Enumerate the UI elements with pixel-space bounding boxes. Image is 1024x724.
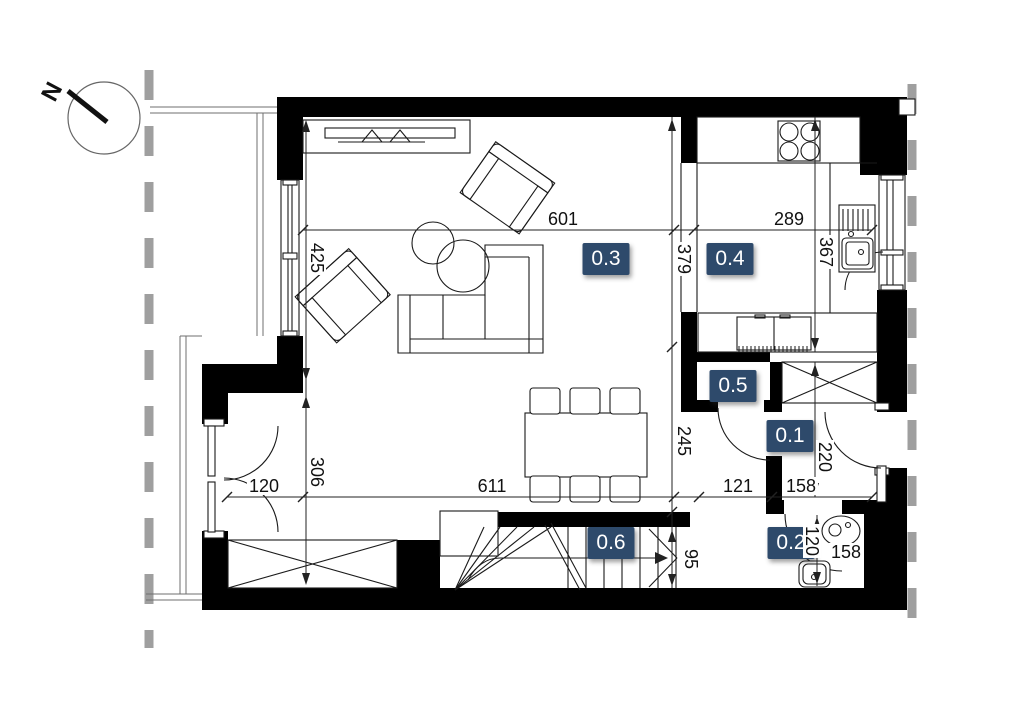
room-label-0-6: 0.6 bbox=[588, 527, 635, 559]
top-right-wall-notch bbox=[899, 99, 915, 115]
floor-plan-drawing bbox=[0, 0, 1024, 724]
dim-label-306: 306 bbox=[308, 455, 326, 489]
dim-label-95: 95 bbox=[682, 547, 700, 571]
dim-label-158-bath: 158 bbox=[829, 543, 863, 561]
dim-label-120-door: 120 bbox=[247, 477, 281, 495]
dim-label-289: 289 bbox=[772, 210, 806, 228]
dim-label-367: 367 bbox=[817, 235, 835, 269]
dim-label-158-hall: 158 bbox=[784, 477, 818, 495]
dim-label-611: 611 bbox=[476, 477, 509, 495]
left-window bbox=[281, 180, 299, 336]
room-label-0-5: 0.5 bbox=[710, 370, 757, 402]
kitchen-appliance-unit bbox=[737, 315, 811, 352]
kitchen-sink-icon bbox=[839, 205, 875, 272]
shaft-crossed-box bbox=[782, 362, 877, 403]
tv-sideboard bbox=[303, 120, 470, 153]
dim-label-601: 601 bbox=[546, 210, 580, 228]
room-label-0-1: 0.1 bbox=[767, 420, 814, 452]
storage-door bbox=[718, 408, 770, 460]
dim-label-425: 425 bbox=[308, 241, 326, 275]
corner-sofa bbox=[398, 245, 543, 353]
armchair bbox=[460, 142, 555, 234]
void-crossed-box bbox=[228, 540, 397, 588]
dim-label-120-bath: 120 bbox=[803, 524, 821, 558]
room-label-0-3: 0.3 bbox=[583, 243, 630, 275]
dim-label-379: 379 bbox=[675, 242, 693, 276]
dining-table bbox=[525, 388, 647, 502]
floor-plan: N 0.3 0.4 0.5 0.1 0.6 0.2 601 289 425 37… bbox=[0, 0, 1024, 724]
dim-label-121: 121 bbox=[721, 477, 755, 495]
north-arrow-icon bbox=[68, 82, 140, 154]
dim-label-245: 245 bbox=[675, 424, 693, 458]
dim-label-220: 220 bbox=[816, 440, 834, 474]
room-label-0-4: 0.4 bbox=[707, 243, 754, 275]
coffee-tables bbox=[412, 222, 489, 292]
